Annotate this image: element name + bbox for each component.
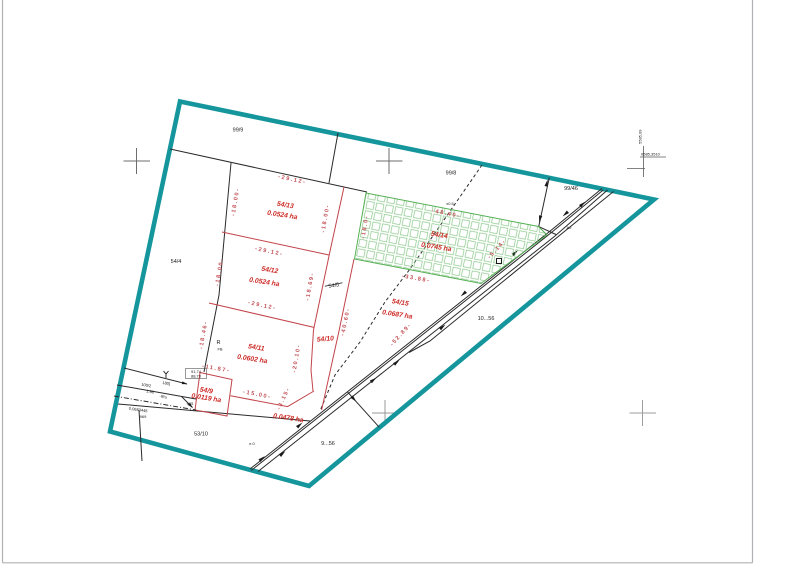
svg-text:969: 969 bbox=[140, 414, 147, 419]
svg-text:e.0: e.0 bbox=[249, 441, 255, 446]
svg-text:0585,3510: 0585,3510 bbox=[641, 152, 661, 157]
svg-text:9...56: 9...56 bbox=[321, 441, 335, 447]
svg-text:x0.5: x0.5 bbox=[446, 201, 454, 206]
svg-text:FB: FB bbox=[217, 347, 222, 352]
svg-text:54/10: 54/10 bbox=[317, 335, 335, 343]
svg-text:99/8: 99/8 bbox=[446, 171, 457, 177]
svg-text:99/9: 99/9 bbox=[233, 128, 244, 134]
svg-text:5585,09: 5585,09 bbox=[638, 129, 643, 144]
svg-text:10...56: 10...56 bbox=[478, 316, 495, 322]
svg-text:54/4: 54/4 bbox=[171, 259, 182, 265]
svg-text:53/10: 53/10 bbox=[194, 432, 208, 438]
svg-text:R: R bbox=[217, 340, 221, 346]
svg-text:99/46: 99/46 bbox=[564, 186, 578, 192]
svg-text:88,73: 88,73 bbox=[191, 374, 202, 379]
svg-text:A2: A2 bbox=[567, 225, 573, 230]
svg-text:905: 905 bbox=[187, 401, 194, 406]
